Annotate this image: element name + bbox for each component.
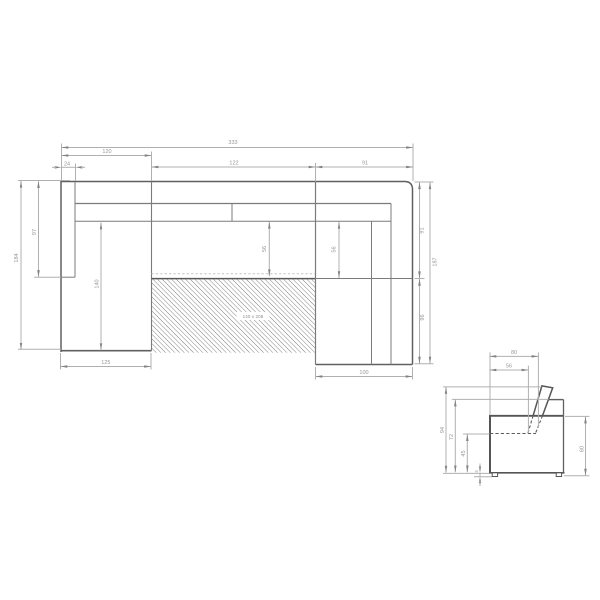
- svg-text:120: 120: [102, 149, 111, 155]
- svg-text:97: 97: [32, 229, 38, 235]
- svg-text:60: 60: [580, 446, 586, 452]
- svg-text:184: 184: [14, 253, 20, 262]
- svg-text:80: 80: [511, 350, 517, 356]
- svg-text:96: 96: [420, 314, 426, 320]
- svg-text:56: 56: [332, 246, 338, 252]
- svg-text:125: 125: [101, 360, 110, 366]
- svg-text:140: 140: [95, 279, 101, 288]
- svg-text:72: 72: [449, 434, 455, 440]
- svg-text:100: 100: [359, 370, 368, 376]
- svg-text:140 x 208: 140 x 208: [243, 314, 264, 319]
- svg-text:56: 56: [506, 363, 512, 369]
- svg-text:122: 122: [229, 160, 238, 166]
- svg-text:45: 45: [461, 450, 467, 456]
- svg-text:333: 333: [228, 140, 237, 146]
- svg-text:187: 187: [432, 257, 438, 266]
- svg-text:91: 91: [362, 160, 368, 166]
- svg-text:56: 56: [262, 246, 268, 252]
- svg-text:24: 24: [64, 161, 70, 167]
- svg-text:94: 94: [440, 427, 446, 433]
- svg-text:91: 91: [420, 227, 426, 233]
